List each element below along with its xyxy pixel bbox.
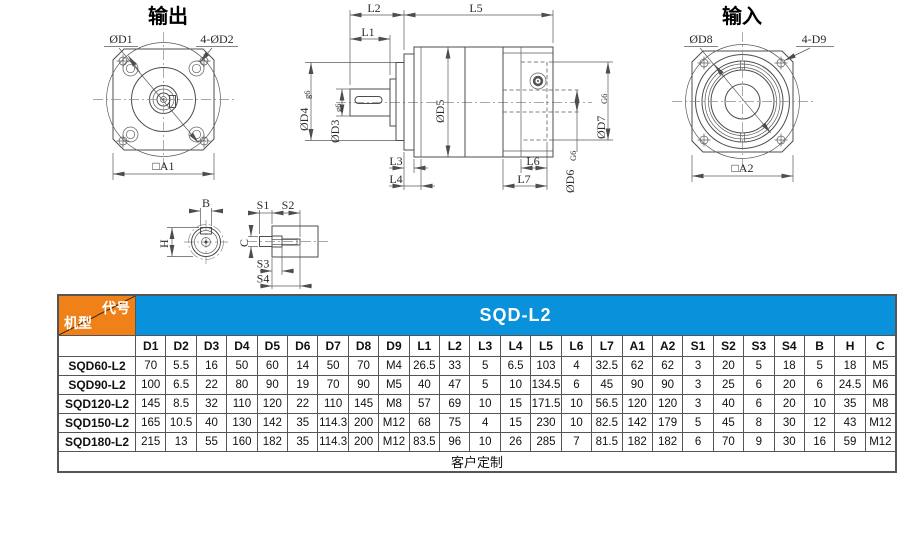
s4-label: S4 — [257, 272, 270, 286]
table-cell: 56.5 — [592, 394, 622, 413]
side-view: L2 L5 L1 ØD4 g6 ØD3 g6 ØD5 ØD7 G6 — [297, 1, 613, 193]
technical-drawing: 输出 ØD1 4-ØD2 — [0, 0, 900, 293]
shaft-section-detail: B H — [157, 196, 228, 264]
table-cell: 120 — [622, 394, 652, 413]
table-row: SQD60-L2705.5165060145070M426.53356.5103… — [58, 356, 896, 375]
table-cell: 120 — [257, 394, 287, 413]
corner-label-model: 机型 — [64, 313, 92, 333]
table-cell: 7 — [561, 432, 591, 451]
l2-label: L2 — [367, 1, 380, 15]
series-title-cell: SQD-L2 — [136, 295, 897, 335]
column-header: D6 — [288, 335, 318, 356]
table-cell: 5 — [470, 356, 500, 375]
table-cell: 230 — [531, 413, 561, 432]
table-cell: M8 — [379, 394, 409, 413]
model-cell: SQD90-L2 — [58, 375, 136, 394]
table-cell: 75 — [440, 413, 470, 432]
table-cell: 25 — [713, 375, 743, 394]
d3-label: ØD3 — [328, 120, 342, 143]
table-cell: 182 — [622, 432, 652, 451]
column-header: S4 — [774, 335, 804, 356]
table-cell: 285 — [531, 432, 561, 451]
d3-tolerance: g6 — [333, 104, 343, 113]
table-cell: 3 — [683, 394, 713, 413]
corner-header-cell: 代号 机型 — [58, 295, 136, 335]
table-cell: 69 — [440, 394, 470, 413]
table-cell: 32.5 — [592, 356, 622, 375]
table-cell: 35 — [288, 413, 318, 432]
column-header: L2 — [440, 335, 470, 356]
footer-cell: 客户定制 — [58, 451, 896, 472]
table-cell: 215 — [136, 432, 166, 451]
table-cell: 5.5 — [166, 356, 196, 375]
empty-header-cell — [58, 335, 136, 356]
table-cell: 50 — [227, 356, 257, 375]
column-header: S1 — [683, 335, 713, 356]
table-cell: 20 — [774, 394, 804, 413]
d4-label: ØD4 — [297, 108, 311, 131]
table-cell: 35 — [288, 432, 318, 451]
table-cell: 142 — [622, 413, 652, 432]
column-header: L1 — [409, 335, 439, 356]
footer-row: 客户定制 — [58, 451, 896, 472]
column-header: S3 — [744, 335, 774, 356]
table-cell: 3 — [683, 375, 713, 394]
table-title-row: 代号 机型 SQD-L2 — [58, 295, 896, 335]
table-cell: 26.5 — [409, 356, 439, 375]
table-cell: 6.5 — [500, 356, 530, 375]
column-header: A1 — [622, 335, 652, 356]
column-header: L7 — [592, 335, 622, 356]
table-cell: 90 — [652, 375, 682, 394]
table-cell: 82.5 — [592, 413, 622, 432]
table-row: SQD120-L21458.53211012022110145M85769101… — [58, 394, 896, 413]
column-header: H — [835, 335, 865, 356]
input-flange-view: 输入 ØD8 4-D9 — [672, 4, 834, 182]
column-header: A2 — [652, 335, 682, 356]
table-cell: 200 — [348, 413, 378, 432]
l4-label: L4 — [389, 172, 402, 186]
table-cell: 70 — [713, 432, 743, 451]
shaft-end-section-detail: S1 S2 C S3 S4 — [237, 198, 328, 289]
table-cell: 110 — [318, 394, 348, 413]
table-cell: 110 — [227, 394, 257, 413]
table-cell: 165 — [136, 413, 166, 432]
table-cell: 14 — [288, 356, 318, 375]
table-cell: 182 — [652, 432, 682, 451]
model-cell: SQD120-L2 — [58, 394, 136, 413]
table-cell: 32 — [196, 394, 226, 413]
table-cell: 55 — [196, 432, 226, 451]
table-cell: 15 — [500, 394, 530, 413]
table-cell: 4 — [561, 356, 591, 375]
table-cell: 6.5 — [166, 375, 196, 394]
table-cell: M12 — [865, 432, 896, 451]
table-row: SQD150-L216510.54013014235114.3200M12687… — [58, 413, 896, 432]
table-cell: 20 — [713, 356, 743, 375]
table-cell: 90 — [348, 375, 378, 394]
table-cell: 6 — [683, 432, 713, 451]
table-cell: 5 — [470, 375, 500, 394]
table-cell: 16 — [804, 432, 834, 451]
table-cell: 5 — [683, 413, 713, 432]
table-cell: 4 — [470, 413, 500, 432]
table-cell: 18 — [835, 356, 865, 375]
table-cell: 5 — [804, 356, 834, 375]
table-cell: 8 — [744, 413, 774, 432]
column-header: D7 — [318, 335, 348, 356]
table-cell: 3 — [683, 356, 713, 375]
table-cell: 6 — [744, 394, 774, 413]
table-cell: 43 — [835, 413, 865, 432]
h-label: H — [157, 239, 171, 248]
column-header: L4 — [500, 335, 530, 356]
table-cell: 12 — [804, 413, 834, 432]
column-header: L6 — [561, 335, 591, 356]
column-header: C — [865, 335, 896, 356]
column-header: D8 — [348, 335, 378, 356]
table-cell: 57 — [409, 394, 439, 413]
column-header: L3 — [470, 335, 500, 356]
table-cell: M12 — [865, 413, 896, 432]
d7-tolerance: G6 — [599, 94, 609, 104]
d6-label: ØD6 — [563, 170, 577, 193]
table-body: SQD60-L2705.5165060145070M426.53356.5103… — [58, 356, 896, 451]
table-cell: 40 — [196, 413, 226, 432]
spec-table: 代号 机型 SQD-L2 D1D2D3D4D5D6D7D8D9L1L2L3L4L… — [57, 294, 897, 473]
table-cell: M5 — [379, 375, 409, 394]
table-cell: 90 — [257, 375, 287, 394]
column-header-row: D1D2D3D4D5D6D7D8D9L1L2L3L4L5L6L7A1A2S1S2… — [58, 335, 896, 356]
table-cell: 22 — [196, 375, 226, 394]
table-cell: 6 — [744, 375, 774, 394]
table-cell: 134.5 — [531, 375, 561, 394]
table-cell: 142 — [257, 413, 287, 432]
l3-label: L3 — [389, 154, 402, 168]
d6-tolerance: G6 — [568, 151, 578, 161]
column-header: D9 — [379, 335, 409, 356]
table-row: SQD180-L2215135516018235114.3200M1283.59… — [58, 432, 896, 451]
table-cell: 70 — [136, 356, 166, 375]
table-cell: 40 — [713, 394, 743, 413]
table-cell: 103 — [531, 356, 561, 375]
table-cell: 9 — [744, 432, 774, 451]
table-cell: 145 — [136, 394, 166, 413]
d5-label: ØD5 — [433, 100, 447, 123]
column-header: D1 — [136, 335, 166, 356]
model-cell: SQD60-L2 — [58, 356, 136, 375]
plug-screw — [530, 73, 546, 89]
column-header: S2 — [713, 335, 743, 356]
l6-label: L6 — [526, 154, 539, 168]
column-header: L5 — [531, 335, 561, 356]
l5-label: L5 — [469, 1, 482, 15]
l7-label: L7 — [517, 172, 530, 186]
table-cell: 50 — [318, 356, 348, 375]
l1-label: L1 — [361, 25, 374, 39]
table-cell: 19 — [288, 375, 318, 394]
table-cell: 18 — [774, 356, 804, 375]
d2-label: 4-ØD2 — [200, 32, 233, 46]
table-cell: 182 — [257, 432, 287, 451]
d7-label: ØD7 — [594, 116, 608, 139]
table-cell: 40 — [409, 375, 439, 394]
table-cell: M12 — [379, 413, 409, 432]
table-cell: 114.3 — [318, 432, 348, 451]
table-cell: 114.3 — [318, 413, 348, 432]
d4-tolerance: g6 — [302, 91, 312, 100]
table-cell: 10 — [804, 394, 834, 413]
output-title: 输出 — [148, 4, 188, 28]
column-header: D4 — [227, 335, 257, 356]
datasheet-page: 输出 ØD1 4-ØD2 — [0, 0, 900, 537]
table-cell: 10 — [561, 394, 591, 413]
table-cell: 80 — [227, 375, 257, 394]
table-cell: M8 — [865, 394, 896, 413]
table-cell: 33 — [440, 356, 470, 375]
table-cell: 62 — [652, 356, 682, 375]
a1-label: □A1 — [153, 159, 175, 173]
table-cell: 26 — [500, 432, 530, 451]
table-cell: 160 — [227, 432, 257, 451]
d9-label: 4-D9 — [802, 32, 827, 46]
table-cell: 179 — [652, 413, 682, 432]
table-cell: 60 — [257, 356, 287, 375]
table-cell: 10 — [561, 413, 591, 432]
table-cell: 10 — [500, 375, 530, 394]
s1-label: S1 — [257, 198, 270, 212]
d1-label: ØD1 — [109, 32, 132, 46]
table-cell: 45 — [713, 413, 743, 432]
table-cell: 24.5 — [835, 375, 865, 394]
table-cell: 22 — [288, 394, 318, 413]
table-cell: 8.5 — [166, 394, 196, 413]
table-cell: 10 — [470, 432, 500, 451]
table-cell: 62 — [622, 356, 652, 375]
table-cell: 70 — [318, 375, 348, 394]
table-cell: 96 — [440, 432, 470, 451]
output-flange-view: 输出 ØD1 4-ØD2 — [93, 4, 238, 180]
column-header: D2 — [166, 335, 196, 356]
table-cell: 10.5 — [166, 413, 196, 432]
s3-label: S3 — [257, 257, 270, 271]
table-cell: M6 — [865, 375, 896, 394]
table-cell: M12 — [379, 432, 409, 451]
table-row: SQD90-L21006.5228090197090M54047510134.5… — [58, 375, 896, 394]
d8-label: ØD8 — [689, 32, 712, 46]
table-cell: 130 — [227, 413, 257, 432]
b-label: B — [202, 196, 210, 210]
a2-label: □A2 — [732, 161, 754, 175]
table-cell: M5 — [865, 356, 896, 375]
table-cell: 30 — [774, 413, 804, 432]
table-cell: 35 — [835, 394, 865, 413]
table-cell: 45 — [592, 375, 622, 394]
table-cell: 47 — [440, 375, 470, 394]
table-cell: 120 — [652, 394, 682, 413]
table-cell: 145 — [348, 394, 378, 413]
table-cell: 15 — [500, 413, 530, 432]
table-cell: 6 — [804, 375, 834, 394]
c-label: C — [237, 239, 251, 247]
model-cell: SQD180-L2 — [58, 432, 136, 451]
table-cell: M4 — [379, 356, 409, 375]
table-cell: 10 — [470, 394, 500, 413]
model-cell: SQD150-L2 — [58, 413, 136, 432]
table-cell: 5 — [744, 356, 774, 375]
table-cell: 59 — [835, 432, 865, 451]
table-cell: 81.5 — [592, 432, 622, 451]
table-cell: 200 — [348, 432, 378, 451]
table-cell: 70 — [348, 356, 378, 375]
table-cell: 16 — [196, 356, 226, 375]
table-cell: 13 — [166, 432, 196, 451]
table-cell: 83.5 — [409, 432, 439, 451]
table-cell: 68 — [409, 413, 439, 432]
column-header: D3 — [196, 335, 226, 356]
column-header: B — [804, 335, 834, 356]
table-cell: 90 — [622, 375, 652, 394]
corner-label-code: 代号 — [102, 298, 130, 318]
table-cell: 6 — [561, 375, 591, 394]
table-cell: 100 — [136, 375, 166, 394]
input-title: 输入 — [722, 4, 762, 28]
s2-label: S2 — [282, 198, 295, 212]
table-cell: 30 — [774, 432, 804, 451]
column-header: D5 — [257, 335, 287, 356]
table-cell: 171.5 — [531, 394, 561, 413]
table-cell: 20 — [774, 375, 804, 394]
